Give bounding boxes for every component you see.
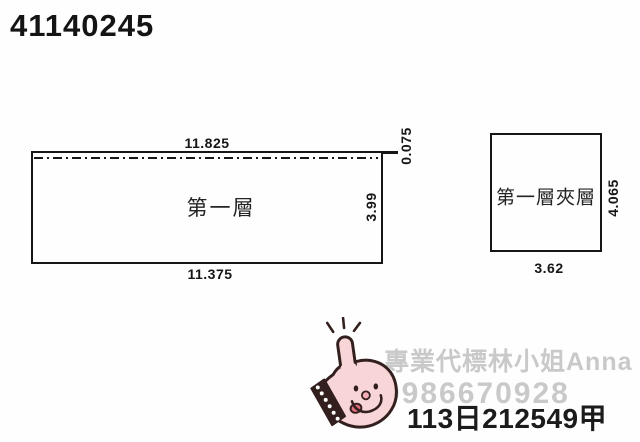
case-number: 113日212549甲	[407, 397, 607, 437]
main-room-label: 第一層	[187, 192, 256, 222]
thumb-base-blend	[340, 362, 358, 380]
mezzanine-bottom-dimension: 3.62	[534, 260, 563, 276]
mezzanine-label: 第一層夾層	[496, 183, 596, 210]
main-room-top-line-overhang	[383, 151, 398, 154]
sparkle-lines-icon	[327, 318, 360, 332]
thumbs-up-stamp-icon	[302, 317, 404, 441]
scanned-floor-plan-page: 41140245 11.825 11.375 3.99 0.075 第一層 3.…	[0, 0, 640, 442]
mezzanine-right-dimension: 4.065	[605, 179, 621, 217]
main-room-right-dimension: 3.99	[363, 192, 379, 221]
main-room-top-dimension: 11.825	[184, 135, 229, 151]
main-room-dashdot-boundary-line	[34, 157, 378, 159]
main-room-bottom-dimension: 11.375	[187, 266, 232, 282]
document-number: 41140245	[10, 8, 154, 44]
watermark-agent-text: 專業代標林小姐Anna	[384, 342, 633, 378]
main-room-offset-dimension: 0.075	[398, 127, 414, 165]
